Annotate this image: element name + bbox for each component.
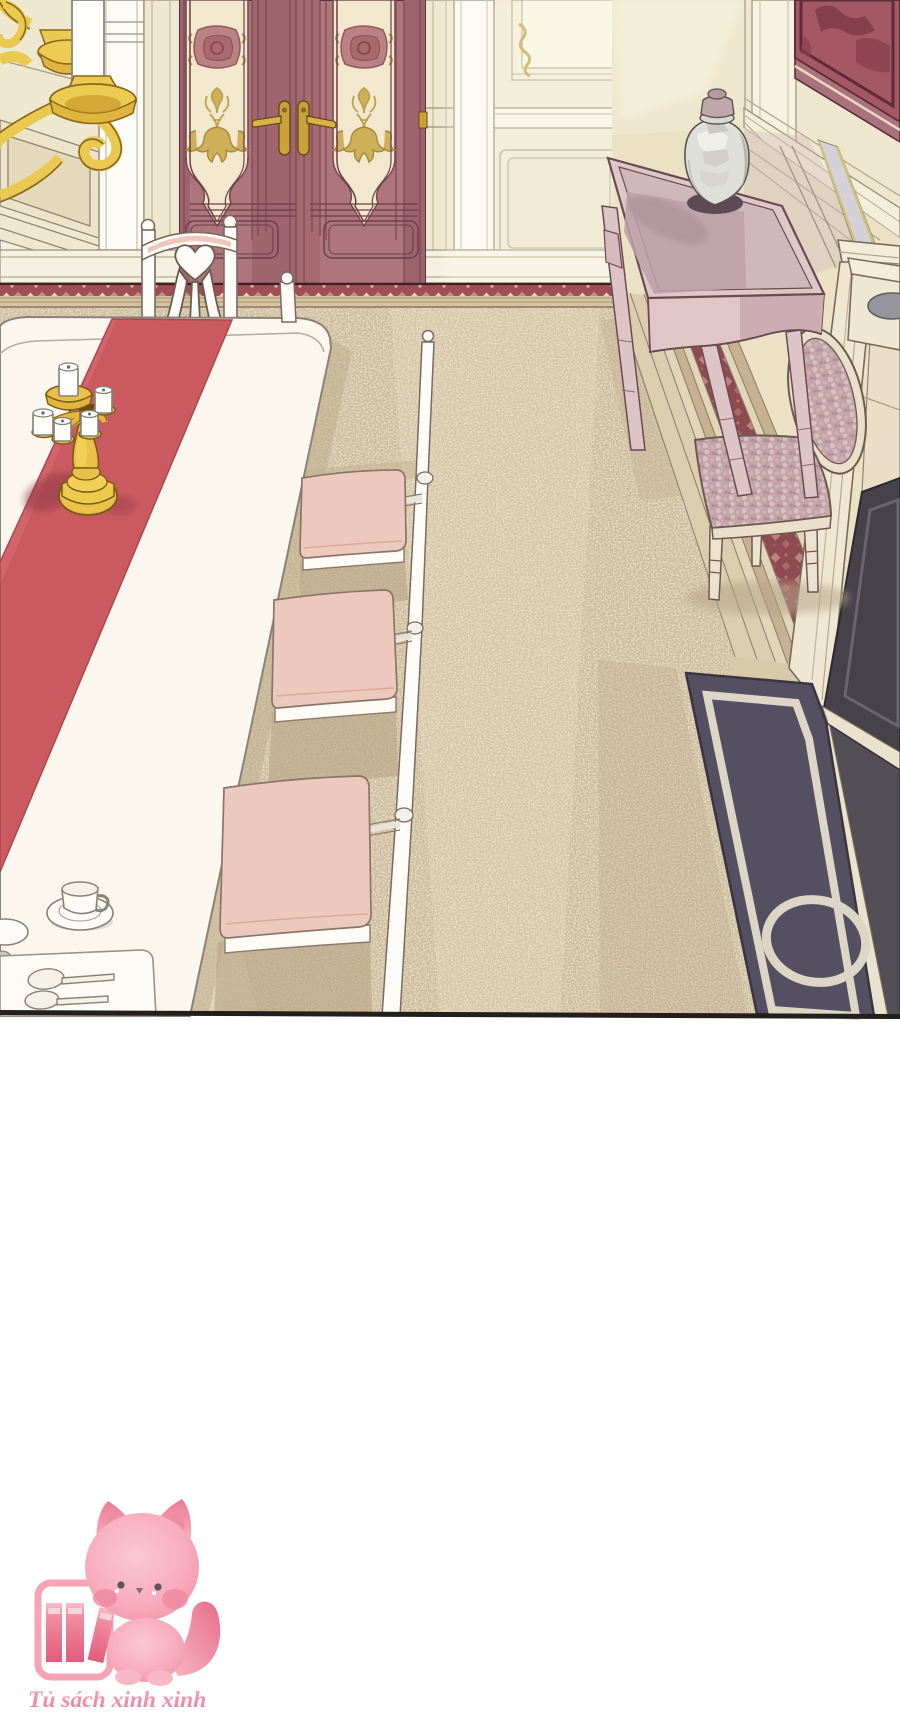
svg-text:Tủ sách xinh xinh: Tủ sách xinh xinh (28, 1687, 206, 1713)
